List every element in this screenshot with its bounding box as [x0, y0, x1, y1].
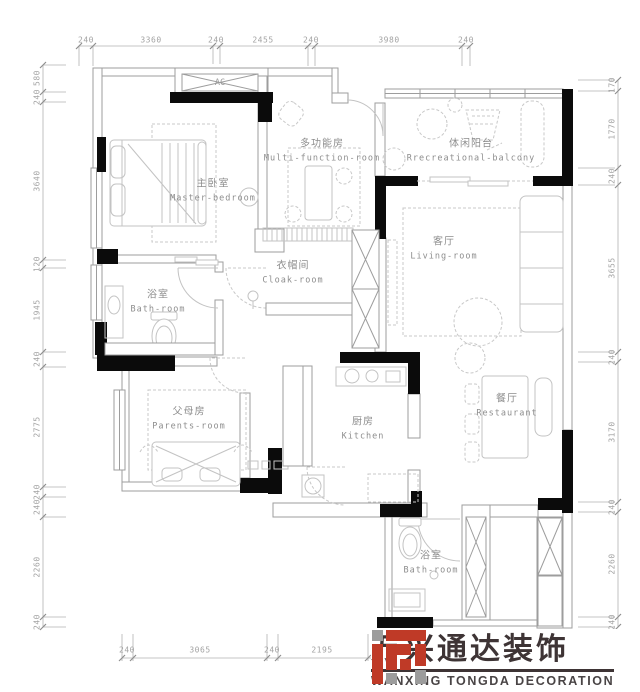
- dim-label: 1945: [33, 299, 42, 320]
- room-name-zh: 厨房: [342, 415, 385, 431]
- room-label-restaurant: 餐厅 Restaurant: [476, 392, 537, 421]
- room-name-en: Kitchen: [342, 430, 385, 443]
- dim-label: 2455: [252, 36, 273, 45]
- room-name-zh: 客厅: [410, 235, 477, 251]
- dim-label: 3655: [608, 257, 617, 278]
- room-name-en: Living-room: [410, 250, 477, 263]
- room-name-en: Restaurant: [476, 407, 537, 420]
- dim-label: 240: [78, 36, 94, 45]
- dim-label: 580: [33, 70, 42, 86]
- dim-label: 240: [608, 614, 617, 630]
- room-label-cloak-room: 衣帽间 Cloak-room: [262, 259, 323, 288]
- dim-label: 3640: [33, 170, 42, 191]
- dim-label: 3980: [378, 36, 399, 45]
- ac-label: AC: [215, 78, 225, 88]
- company-logo: 万兴通达装饰 WANXING TONGDA DECORATION: [371, 629, 639, 691]
- room-name-en: Cloak-room: [262, 274, 323, 287]
- room-label-master-bedroom: 主卧室 Master-bedroom: [170, 177, 256, 206]
- floor-plan-drawing: [0, 0, 640, 692]
- room-name-zh: 衣帽间: [262, 259, 323, 275]
- dim-label: 170: [608, 77, 617, 93]
- dim-label: 3065: [189, 646, 210, 655]
- room-name-zh: 父母房: [152, 405, 225, 421]
- room-label-kitchen: 厨房 Kitchen: [342, 415, 385, 444]
- room-name-zh: 餐厅: [476, 392, 537, 408]
- dim-label: 2195: [311, 646, 332, 655]
- dim-label: 240: [33, 614, 42, 630]
- room-label-parents-room: 父母房 Parents-room: [152, 405, 225, 434]
- dim-label: 240: [608, 168, 617, 184]
- dim-label: 1770: [608, 118, 617, 139]
- dim-label: 2775: [33, 416, 42, 437]
- dim-label: 2260: [608, 553, 617, 574]
- room-name-en: Bath-room: [130, 303, 185, 316]
- dim-label: 240: [33, 499, 42, 515]
- dim-label: 3170: [608, 421, 617, 442]
- room-name-zh: 体闲阳台: [407, 137, 535, 153]
- dim-label: 240: [303, 36, 319, 45]
- room-name-zh: 多功能房: [264, 137, 380, 153]
- dim-label: 120: [33, 256, 42, 272]
- dim-label: 3360: [140, 36, 161, 45]
- room-label-multi-function-room: 多功能房 Multi-function-room: [264, 137, 380, 166]
- room-label-living-room: 客厅 Living-room: [410, 235, 477, 264]
- room-name-en: Bath-room: [403, 564, 458, 577]
- dim-label: 240: [608, 349, 617, 365]
- room-label-recreational-balcony: 体闲阳台 Rrecreational-balcony: [407, 137, 535, 166]
- dim-label: 240: [608, 499, 617, 515]
- room-name-en: Parents-room: [152, 420, 225, 433]
- dim-label: 240: [264, 646, 280, 655]
- room-name-zh: 浴室: [130, 288, 185, 304]
- room-name-en: Multi-function-room: [264, 152, 380, 165]
- dim-label: 240: [33, 89, 42, 105]
- room-label-bath-room-1: 浴室 Bath-room: [130, 288, 185, 317]
- dim-label: 240: [208, 36, 224, 45]
- room-name-zh: 浴室: [403, 549, 458, 565]
- logo-mark-icon: [371, 629, 427, 685]
- dim-label: 2260: [33, 556, 42, 577]
- room-name-en: Rrecreational-balcony: [407, 152, 535, 165]
- floor-plan-page: 240 3360 240 2455 240 3980 240 580 240 3…: [0, 0, 640, 692]
- room-name-zh: 主卧室: [170, 177, 256, 193]
- living-room-furniture: [388, 196, 563, 373]
- dim-label: 240: [33, 351, 42, 367]
- room-label-bath-room-2: 浴室 Bath-room: [403, 549, 458, 578]
- dim-label: 240: [458, 36, 474, 45]
- dim-label: 240: [33, 484, 42, 500]
- storage-column: [538, 518, 562, 626]
- room-name-en: Master-bedroom: [170, 192, 256, 205]
- dim-label: 240: [119, 646, 135, 655]
